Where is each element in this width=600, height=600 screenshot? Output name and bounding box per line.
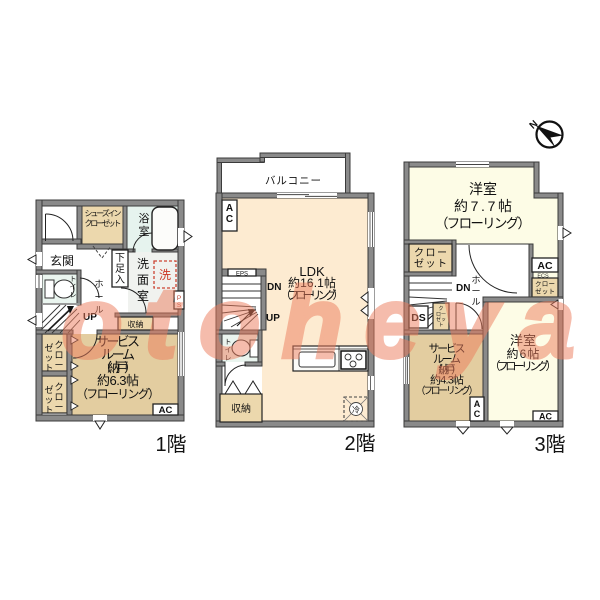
svg-text:ッ: ッ [44, 395, 53, 405]
svg-text:ゼ: ゼ [44, 342, 53, 353]
svg-text:A: A [474, 399, 481, 409]
svg-text:下: 下 [115, 253, 125, 264]
svg-text:2階: 2階 [344, 432, 375, 455]
svg-text:ト: ト [44, 363, 53, 373]
svg-text:（フローリング）: （フローリング） [435, 216, 531, 231]
svg-text:バルコニー: バルコニー [265, 175, 321, 187]
svg-text:S: S [177, 302, 182, 309]
svg-text:UP: UP [266, 313, 280, 324]
svg-text:収納: 収納 [128, 319, 144, 329]
svg-text:1階: 1階 [155, 433, 186, 456]
svg-text:洋室: 洋室 [469, 181, 497, 197]
svg-text:ゼ: ゼ [44, 384, 53, 395]
svg-text:AC: AC [539, 412, 552, 422]
svg-text:約7.7帖: 約7.7帖 [454, 198, 512, 214]
svg-text:ト: ト [44, 405, 53, 415]
svg-text:玄関: 玄関 [50, 253, 74, 268]
svg-text:AC: AC [159, 405, 173, 416]
svg-text:ー: ー [54, 402, 63, 412]
svg-text:C: C [226, 214, 233, 225]
svg-text:クローゼット: クローゼット [85, 218, 122, 228]
svg-text:室: 室 [139, 224, 150, 238]
svg-text:ロ: ロ [54, 392, 63, 402]
svg-text:クロー: クロー [414, 247, 447, 259]
svg-text:冷: 冷 [352, 405, 360, 415]
svg-text:（フローリング）: （フローリング） [76, 387, 160, 401]
svg-text:シューズイン: シューズイン [85, 208, 122, 218]
svg-text:ク: ク [54, 382, 63, 392]
svg-text:C: C [474, 409, 481, 419]
svg-text:（フローリング）: （フローリング） [416, 384, 479, 397]
svg-text:ッ: ッ [44, 353, 53, 363]
svg-text:A: A [226, 203, 233, 214]
svg-text:収納: 収納 [231, 402, 251, 415]
svg-text:3階: 3階 [534, 433, 565, 456]
svg-text:浴: 浴 [139, 212, 150, 225]
